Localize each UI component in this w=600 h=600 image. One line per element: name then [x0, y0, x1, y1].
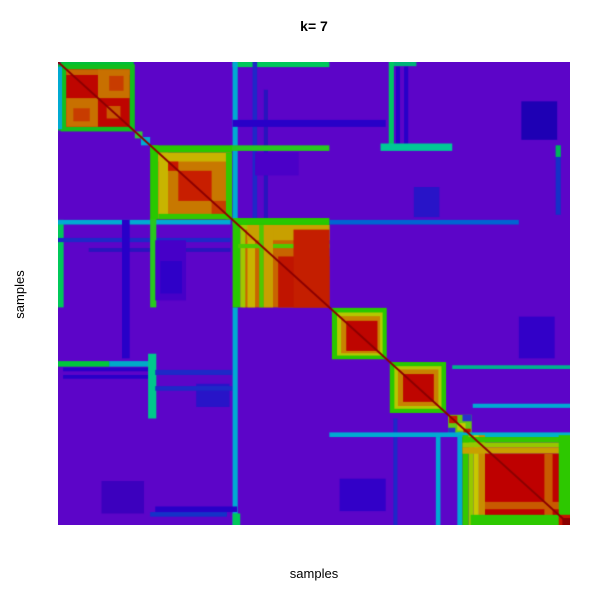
consensus-heatmap-figure: k= 7 samples samples [0, 0, 600, 600]
x-axis-label: samples [58, 566, 570, 581]
y-axis-label: samples [12, 63, 27, 526]
plot-title: k= 7 [58, 18, 570, 34]
consensus-matrix-heatmap [58, 62, 570, 525]
